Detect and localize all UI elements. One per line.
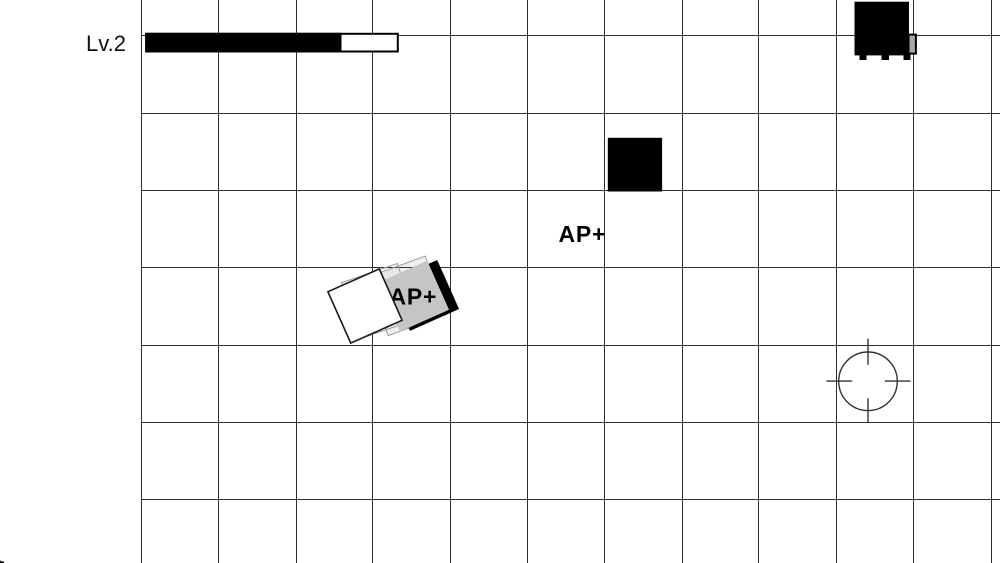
svg-text:AP+: AP+ — [559, 221, 607, 247]
svg-text:Lv.2: Lv.2 — [86, 31, 126, 56]
svg-text:AP+: AP+ — [390, 283, 438, 309]
